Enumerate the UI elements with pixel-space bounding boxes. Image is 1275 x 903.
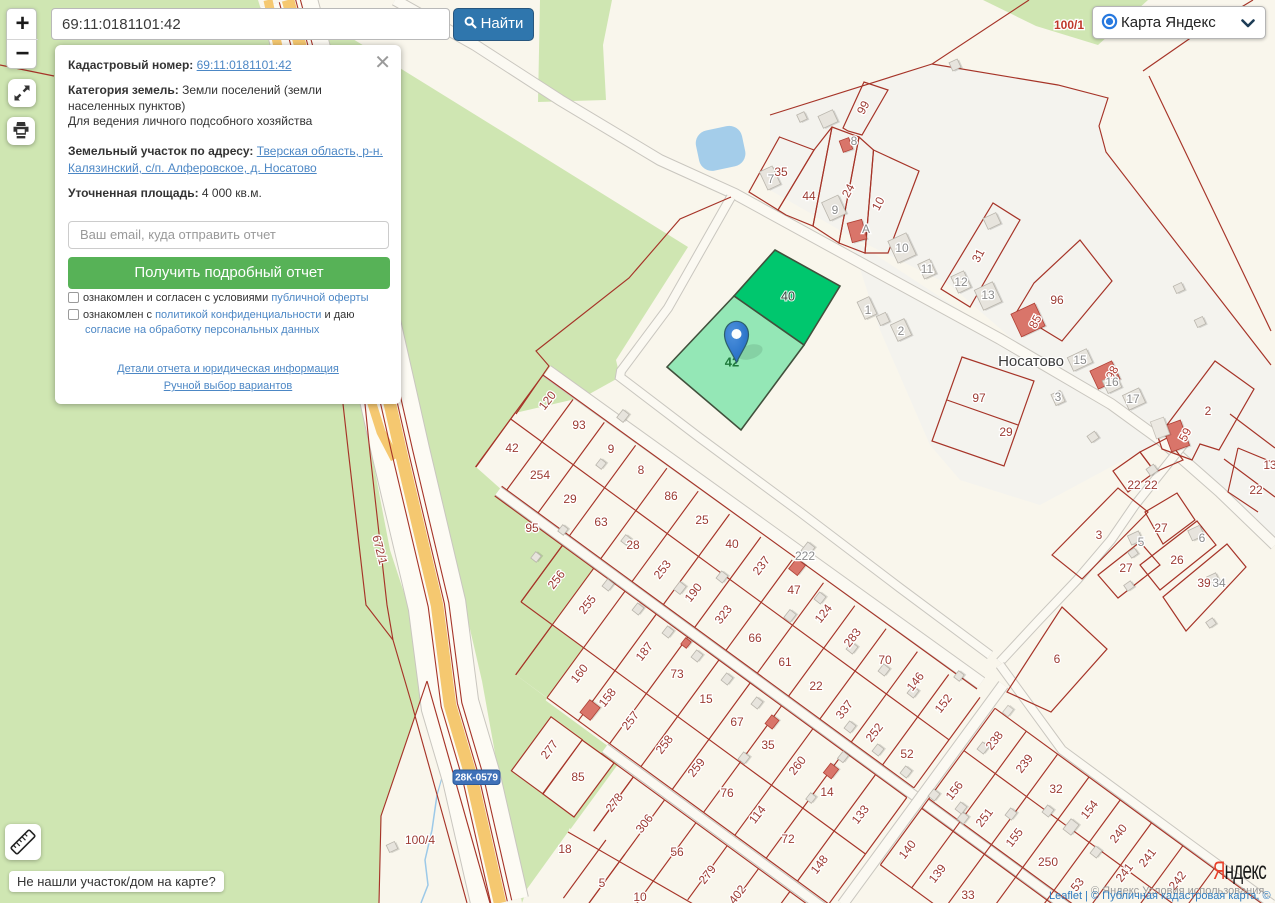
- svg-text:52: 52: [900, 747, 914, 761]
- svg-text:47: 47: [787, 583, 801, 597]
- svg-text:100/4: 100/4: [405, 833, 435, 847]
- svg-text:5: 5: [1138, 535, 1145, 549]
- svg-text:2: 2: [898, 324, 905, 338]
- svg-text:100/1: 100/1: [1054, 18, 1084, 32]
- svg-text:18: 18: [558, 842, 572, 856]
- svg-text:12: 12: [954, 275, 968, 289]
- svg-text:63: 63: [594, 515, 608, 529]
- svg-text:27: 27: [1154, 521, 1168, 535]
- svg-text:22: 22: [809, 679, 823, 693]
- svg-text:250: 250: [1038, 855, 1058, 869]
- svg-text:72: 72: [781, 832, 795, 846]
- svg-text:6: 6: [1199, 531, 1206, 545]
- svg-text:2: 2: [1205, 404, 1212, 418]
- svg-text:6: 6: [1054, 652, 1061, 666]
- svg-text:28: 28: [626, 538, 640, 552]
- svg-text:40: 40: [725, 537, 739, 551]
- svg-text:14: 14: [820, 785, 834, 799]
- svg-text:39: 39: [1197, 576, 1211, 590]
- svg-text:A: A: [862, 222, 870, 236]
- svg-text:56: 56: [670, 845, 684, 859]
- svg-text:22: 22: [1249, 483, 1263, 497]
- svg-text:34: 34: [1212, 576, 1226, 590]
- svg-text:61: 61: [778, 655, 792, 669]
- svg-text:76: 76: [720, 786, 734, 800]
- svg-text:16: 16: [1105, 375, 1119, 389]
- svg-text:35: 35: [774, 165, 788, 179]
- svg-text:28К-0579: 28К-0579: [455, 772, 498, 783]
- svg-text:26: 26: [1170, 553, 1184, 567]
- svg-text:13: 13: [1263, 458, 1275, 472]
- svg-text:40: 40: [781, 289, 795, 303]
- svg-text:15: 15: [699, 692, 713, 706]
- svg-text:96: 96: [1050, 293, 1064, 307]
- svg-text:44: 44: [802, 189, 816, 203]
- svg-text:222: 222: [795, 549, 815, 563]
- svg-text:70: 70: [878, 653, 892, 667]
- svg-text:5: 5: [599, 876, 606, 890]
- svg-text:10: 10: [895, 241, 909, 255]
- svg-text:73: 73: [670, 667, 684, 681]
- svg-text:93: 93: [572, 418, 586, 432]
- svg-text:3: 3: [1055, 390, 1062, 404]
- svg-text:22: 22: [1127, 478, 1141, 492]
- svg-text:8: 8: [851, 134, 858, 148]
- svg-text:29: 29: [563, 492, 577, 506]
- svg-text:27: 27: [1119, 561, 1133, 575]
- svg-text:17: 17: [1126, 392, 1140, 406]
- svg-text:1: 1: [865, 303, 872, 317]
- svg-text:15: 15: [1073, 353, 1087, 367]
- svg-text:25: 25: [695, 513, 709, 527]
- svg-text:97: 97: [972, 391, 986, 405]
- svg-text:254: 254: [530, 468, 550, 482]
- svg-text:13: 13: [981, 288, 995, 302]
- svg-text:95: 95: [525, 521, 539, 535]
- svg-text:35: 35: [761, 738, 775, 752]
- svg-text:33: 33: [961, 888, 975, 902]
- svg-text:9: 9: [608, 442, 615, 456]
- svg-text:7: 7: [768, 172, 775, 186]
- svg-text:32: 32: [1049, 782, 1063, 796]
- svg-text:29: 29: [999, 425, 1013, 439]
- svg-text:86: 86: [664, 489, 678, 503]
- svg-text:85: 85: [571, 770, 585, 784]
- svg-text:66: 66: [748, 631, 762, 645]
- svg-text:8: 8: [638, 463, 645, 477]
- svg-text:42: 42: [505, 441, 519, 455]
- svg-text:67: 67: [730, 715, 744, 729]
- svg-text:9: 9: [832, 203, 839, 217]
- svg-text:22: 22: [1144, 478, 1158, 492]
- svg-text:11: 11: [921, 262, 934, 276]
- svg-text:3: 3: [1096, 528, 1103, 542]
- svg-text:Носатово: Носатово: [998, 353, 1064, 370]
- svg-text:10: 10: [633, 890, 647, 903]
